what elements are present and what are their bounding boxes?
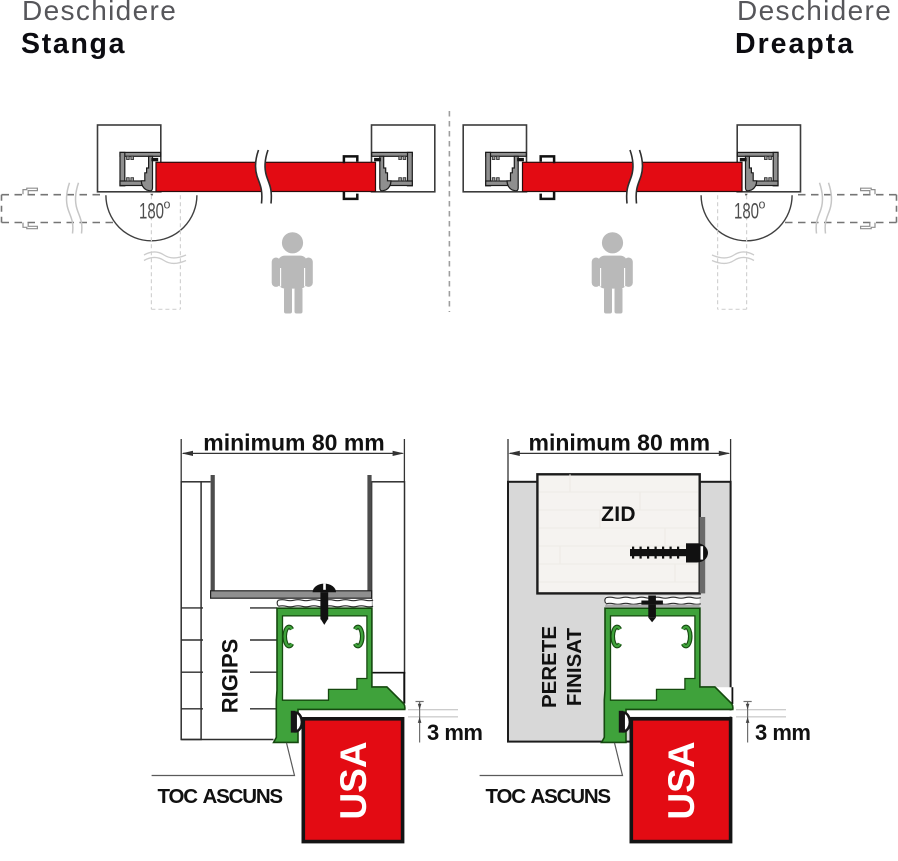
- svg-text:Stanga: Stanga: [21, 28, 126, 60]
- svg-text:Deschidere: Deschidere: [22, 0, 177, 26]
- svg-text:minimum 80 mm: minimum 80 mm: [203, 430, 385, 456]
- svg-text:USA: USA: [333, 741, 374, 819]
- svg-text:TOC ASCUNS: TOC ASCUNS: [158, 785, 283, 808]
- svg-text:3 mm: 3 mm: [427, 720, 482, 745]
- svg-text:180: 180: [734, 199, 759, 224]
- svg-text:RIGIPS: RIGIPS: [218, 639, 243, 714]
- svg-text:ZID: ZID: [601, 503, 636, 526]
- svg-text:PERETE: PERETE: [538, 626, 561, 708]
- svg-text:o: o: [759, 198, 766, 212]
- svg-text:Dreapta: Dreapta: [735, 28, 855, 60]
- svg-text:Deschidere: Deschidere: [737, 0, 892, 26]
- svg-text:o: o: [164, 198, 171, 212]
- svg-text:FINISAT: FINISAT: [563, 627, 586, 706]
- svg-text:180: 180: [139, 199, 164, 224]
- svg-text:minimum 80 mm: minimum 80 mm: [529, 430, 711, 456]
